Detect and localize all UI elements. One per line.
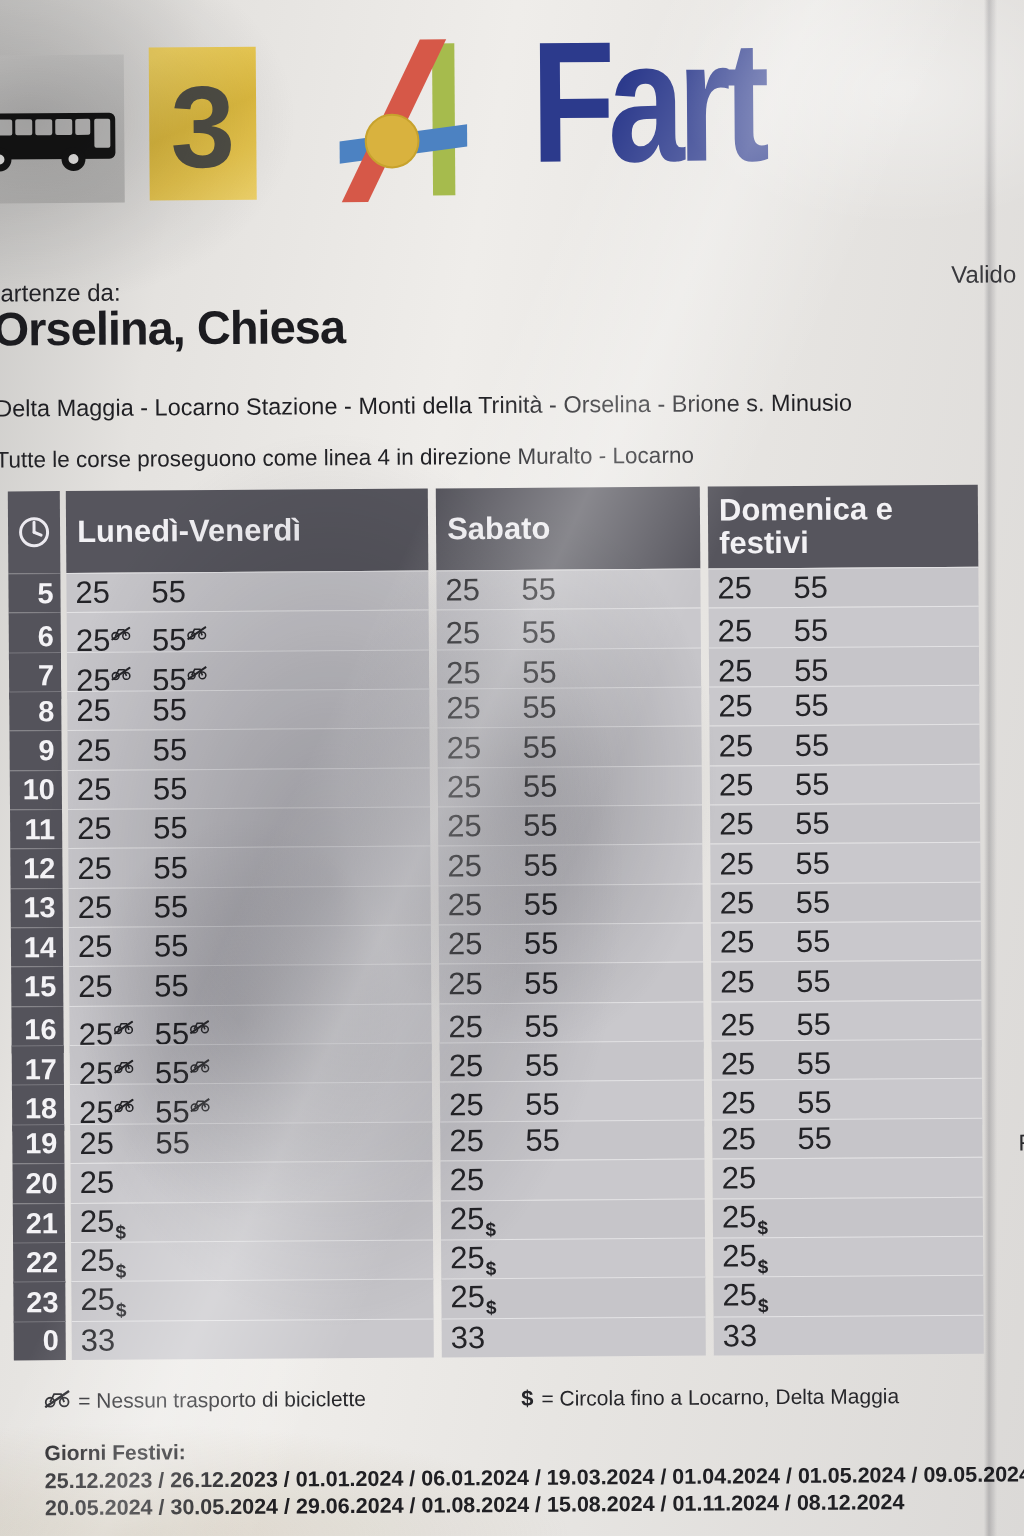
no-bicycle-icon [111,652,131,688]
timetable-row: 19255525552555 [12,1117,982,1163]
hour-cell: 12 [10,848,62,888]
column-header-sunday-holidays: Domenica e festivi [708,485,979,569]
hour-cell: 15 [11,966,63,1006]
hour-cell: 23 [13,1281,65,1322]
time-cell: 25$ [71,1279,433,1323]
timetable-row: 2225$25$25$ [13,1235,983,1281]
time-cell: 25 [712,1157,982,1198]
timetable-header: Lunedì-Venerdì Sabato Domenica e festivi [8,485,979,574]
timetable-row: 8255525552555 [9,685,979,731]
dollar-symbol: $ [486,1258,497,1279]
time-cell: 2555 [710,842,980,883]
timetable-row: 10255525552555 [10,763,980,809]
time-cell: 2555 [69,885,431,927]
time-cell: 25$ [713,1196,983,1239]
timetable-row: 9255525552555 [9,724,979,770]
time-cell: 33 [714,1314,984,1355]
fart-logo-text: Fart [530,14,762,188]
timetable-rows: 5255525552555625552555255572555255525558… [8,567,983,1361]
time-cell: 2555 [68,807,430,849]
holidays-title: Giorni Festivi: [44,1434,1024,1465]
time-cell: 2555 [438,844,702,885]
time-cell: 2555 [439,883,703,924]
time-cell: 2555 [68,767,430,809]
timetable-poster-photo: 3 Fart Valido Partenze da: Orselina, Chi… [0,0,1024,1536]
timetable-row: 14255525552555 [11,921,981,967]
hour-cell: 22 [13,1242,65,1283]
time-cell: 2555 [711,881,981,922]
hour-cell: 0 [14,1321,66,1361]
timetable-row: 13255525552555 [11,881,981,927]
legend-no-bicycle-text: = Nessun trasporto di biciclette [78,1387,366,1413]
timetable-row: 18255525552555 [12,1078,982,1124]
no-bicycle-icon [114,1046,134,1082]
hour-cell: 11 [10,809,62,849]
hour-cell: 21 [13,1203,65,1244]
hour-cell: 20 [12,1163,64,1203]
time-cell: 2555 [67,728,429,770]
time-cell: 33 [72,1318,434,1360]
arcobaleno-logo [339,38,482,203]
legend-dollar: $ = Circola fino a Locarno, Delta Maggia [521,1383,899,1412]
legend-dollar-text: = Circola fino a Locarno, Delta Maggia [541,1384,899,1410]
time-cell: 2555 [69,925,431,967]
time-cell: 2555 [438,805,702,846]
time-cell: 25 [440,1159,704,1200]
time-cell: 25$ [713,1275,983,1318]
holidays-dates-line-2: 20.05.2024 / 30.05.2024 / 29.06.2024 / 0… [45,1488,1024,1522]
poster-sheet: 3 Fart Valido Partenze da: Orselina, Chi… [0,0,1024,1536]
time-cell: 2555 [70,1121,432,1163]
time-cell: 2555 [712,1117,982,1158]
no-bicycle-icon [187,652,207,688]
timetable-row: 5255525552555 [8,567,978,613]
service-note: Tutte le corse proseguono come linea 4 i… [0,443,694,474]
time-cell: 33 [442,1316,706,1357]
timetable: Lunedì-Venerdì Sabato Domenica e festivi… [8,485,984,1361]
time-cell: 2555 [711,921,981,962]
no-bicycle-icon [190,1085,210,1121]
route-description: Delta Maggia - Locarno Stazione - Monti … [0,390,852,423]
bus-pictogram-box [0,55,125,204]
time-cell: 2555 [67,689,429,731]
bus-icon [0,189,125,207]
dollar-symbol: $ [116,1300,127,1321]
legend-no-bicycle: = Nessun trasporto di biciclette [44,1387,366,1413]
time-cell: 2555 [66,571,428,613]
time-cell: 25$ [71,1200,433,1244]
validity-label: Valido [951,260,1016,288]
line-number: 3 [170,68,235,184]
hour-cell: 10 [10,770,62,810]
hour-cell: 19 [12,1124,64,1164]
fart-operator-logo: Fart [530,14,811,201]
timetable-row: 20252525 [12,1157,982,1203]
no-bicycle-icon [190,1006,210,1042]
time-cell: 2555 [438,765,702,806]
dollar-symbol: $ [758,1256,769,1277]
time-cell: 2555 [437,726,701,767]
time-cell: 2555 [69,964,431,1006]
no-bicycle-icon [111,613,131,649]
timetable-row: 2125$25$25$ [13,1196,983,1242]
time-cell: 25$ [71,1239,433,1283]
hour-cell: 8 [9,691,61,731]
timetable-row: 11255525552555 [10,803,980,849]
time-cell: 25$ [441,1277,705,1320]
time-cell: 2555 [709,685,979,726]
stop-name-title: Orselina, Chiesa [0,299,345,356]
no-bicycle-icon [114,1085,134,1121]
time-cell: 25$ [441,1237,705,1280]
no-bicycle-icon [44,1389,70,1413]
timetable-row: 16255525552555 [11,999,981,1045]
time-cell: 2555 [710,763,980,804]
time-cell: 2555 [437,687,701,728]
no-bicycle-icon [114,1006,134,1042]
dollar-symbol: $ [758,1295,769,1316]
line-number-badge: 3 [149,47,257,201]
timetable-row: 12255525552555 [10,842,980,888]
timetable-row: 17255525552555 [12,1039,982,1085]
timetable-row: 7255525552555 [9,645,979,691]
timetable-row: 0333333 [14,1314,984,1360]
time-cell: 25$ [713,1235,983,1278]
no-bicycle-icon [187,612,207,648]
timetable-row: 15255525552555 [11,960,981,1006]
hour-cell: 14 [11,927,63,967]
no-bicycle-icon [190,1045,210,1081]
time-cell: 2555 [439,923,703,964]
timetable-row: 2325$25$25$ [13,1275,983,1321]
dollar-symbol: $ [115,1221,126,1242]
dollar-symbol: $ [116,1260,127,1281]
clock-icon [8,491,61,573]
column-header-saturday: Sabato [436,487,701,571]
dollar-symbol: $ [521,1386,533,1412]
time-cell: 2555 [709,724,979,765]
time-cell: 2555 [708,567,978,608]
dollar-symbol: $ [485,1219,496,1240]
time-cell: 2555 [710,803,980,844]
column-header-weekdays: Lunedì-Venerdì [66,489,429,574]
dollar-symbol: $ [486,1297,497,1318]
dollar-symbol: $ [757,1217,768,1238]
legend: = Nessun trasporto di biciclette $ = Cir… [44,1383,1004,1424]
holidays-block: Giorni Festivi: 25.12.2023 / 26.12.2023 … [44,1434,1024,1522]
hour-cell: 5 [8,573,60,613]
time-cell: 2555 [440,1119,704,1160]
time-cell: 2555 [439,962,703,1003]
time-cell: 2555 [436,569,700,610]
time-cell: 2555 [68,846,430,888]
hour-cell: 9 [9,730,61,770]
cut-off-text-fragment: F [1018,1129,1024,1156]
time-cell: 25 [70,1161,432,1203]
timetable-row: 6255525552555 [9,606,979,652]
time-cell: 2555 [711,960,981,1001]
hour-cell: 13 [11,888,63,928]
time-cell: 25$ [441,1198,705,1241]
